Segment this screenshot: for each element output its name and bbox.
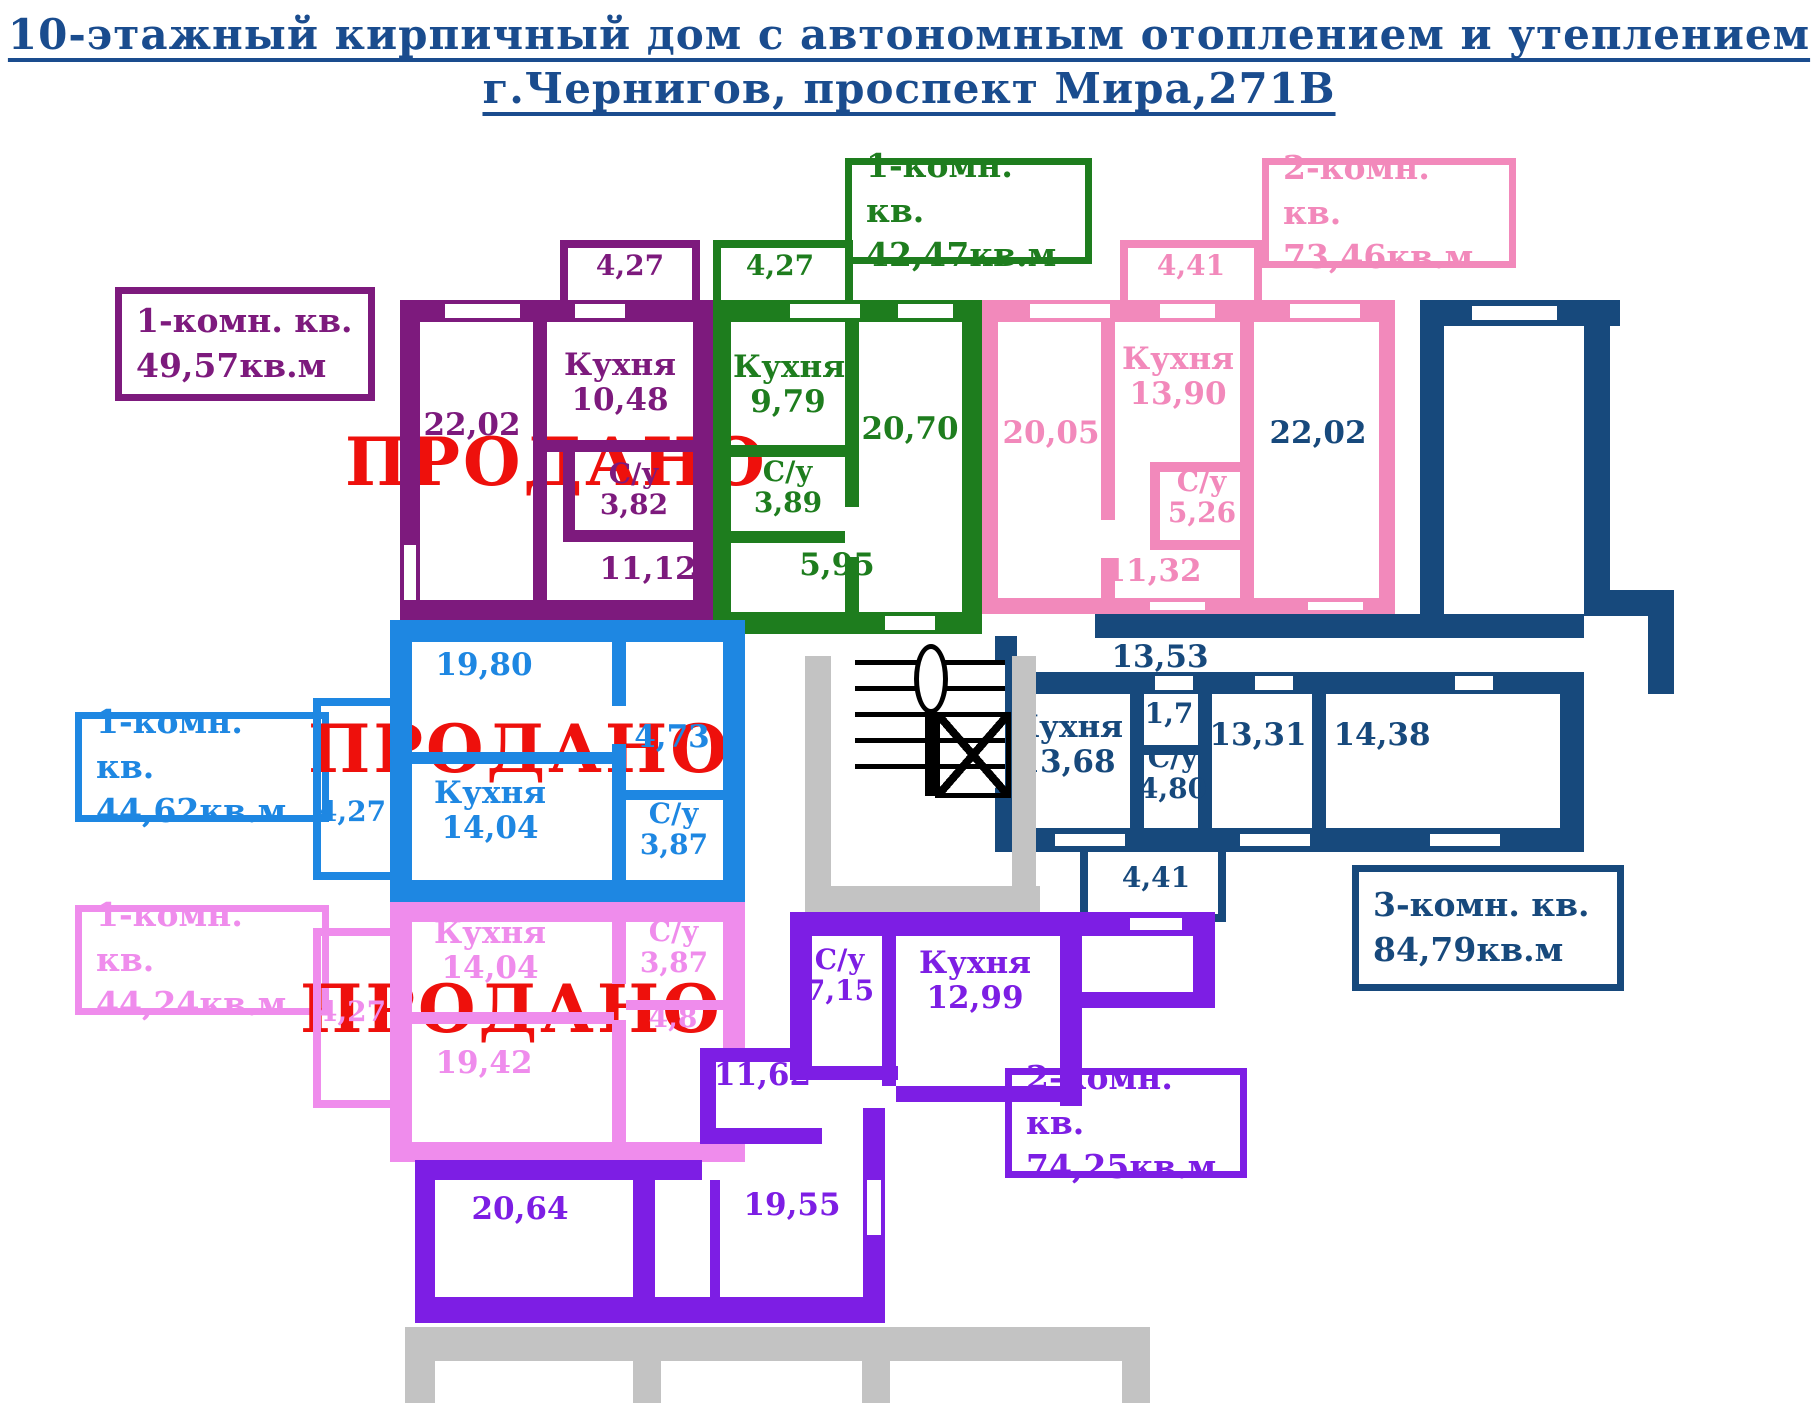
- bathroom-name: С/у: [733, 456, 843, 487]
- wall: [1312, 694, 1326, 828]
- apartment-type: 1-комн. кв.: [96, 700, 308, 789]
- window-opening: [1130, 918, 1182, 930]
- bathroom-area: 5,26: [1158, 497, 1246, 528]
- apartment-area: 84,79кв.м: [1373, 928, 1603, 973]
- balcony-wall: [1254, 240, 1262, 302]
- wall: [390, 642, 412, 882]
- balcony-wall: [313, 872, 392, 880]
- elevator-icon: [935, 712, 1011, 798]
- window-opening: [445, 304, 520, 318]
- page-title: 10-этажный кирпичный дом с автономным от…: [0, 10, 1818, 59]
- bathroom-label: С/у 3,87: [628, 798, 720, 861]
- wall: [390, 620, 745, 642]
- apartment-label-pink: 2-комн. кв. 73,46кв.м: [1262, 158, 1516, 268]
- bathroom-area: 7,15: [798, 975, 882, 1006]
- bathroom-label: С/у 3,82: [580, 458, 688, 521]
- hall-area-label: 4,73: [626, 720, 718, 755]
- bathroom-label: С/у 5,26: [1158, 466, 1246, 529]
- room-area-label: 22,02: [1258, 416, 1378, 451]
- apartment-type: 1-комн. кв.: [136, 299, 354, 344]
- wall: [882, 936, 896, 1086]
- wall: [563, 530, 693, 542]
- apartment-label-light-pink: 1-комн. кв. 44,24кв.м: [75, 905, 329, 1015]
- wall: [1584, 590, 1674, 616]
- balcony-wall: [313, 928, 392, 936]
- kitchen-name: Кухня: [733, 350, 843, 385]
- wall: [1584, 326, 1610, 590]
- kitchen-name: Кухня: [1118, 342, 1238, 377]
- wall: [713, 612, 982, 634]
- kitchen-name: Кухня: [424, 916, 556, 951]
- balcony-wall: [1218, 852, 1226, 922]
- hall-area-label: 11,12: [585, 552, 711, 587]
- wall: [1379, 322, 1395, 598]
- wall: [1082, 992, 1215, 1008]
- balcony-wall: [1120, 240, 1262, 248]
- wall: [412, 1012, 614, 1024]
- bathroom-name: С/у: [580, 458, 688, 489]
- wall: [723, 922, 745, 1048]
- room-area-label: 19,55: [736, 1188, 848, 1223]
- balcony-wall: [313, 1100, 392, 1108]
- wall: [633, 1180, 655, 1300]
- apartment-label-navy: 3-комн. кв. 84,79кв.м: [1352, 865, 1624, 991]
- bathroom-name: С/у: [1134, 742, 1212, 773]
- wall: [896, 1086, 1082, 1102]
- hall-area-label: 11,62: [714, 1058, 810, 1093]
- kitchen-label: Кухня 14,04: [424, 916, 556, 985]
- apartment-label-purple: 1-комн. кв. 49,57кв.м: [115, 287, 375, 401]
- balcony-area-label: 4,27: [722, 250, 838, 281]
- door-opening: [575, 304, 625, 318]
- wall: [1560, 694, 1584, 828]
- bathroom-label: С/у 3,87: [628, 916, 720, 979]
- foundation-pillar: [1122, 1361, 1150, 1403]
- page-subtitle: г.Чернигов, проспект Мира,271В: [0, 64, 1818, 113]
- room-area-label: 20,64: [462, 1192, 578, 1227]
- window-opening: [1472, 306, 1557, 320]
- room-area-label: 22,02: [408, 408, 536, 443]
- bathroom-label: С/у 4,80: [1134, 742, 1212, 805]
- wall: [700, 1128, 822, 1144]
- wall: [547, 440, 693, 452]
- wall: [415, 1160, 702, 1180]
- window-opening: [790, 304, 860, 318]
- apartment-area: 44,62кв.м: [96, 789, 308, 834]
- window-opening: [1430, 834, 1500, 846]
- balcony-wall: [560, 240, 700, 248]
- wall: [982, 322, 998, 598]
- wall: [1060, 936, 1082, 1106]
- wall: [1420, 326, 1444, 620]
- wall: [805, 886, 1040, 912]
- wall: [1095, 614, 1584, 638]
- wall: [412, 752, 614, 764]
- door-opening: [1155, 676, 1193, 690]
- wall: [563, 452, 575, 540]
- balcony-area-label: 4,27: [572, 250, 688, 281]
- door-opening: [1255, 676, 1293, 690]
- kitchen-name: Кухня: [545, 348, 695, 383]
- stair-rail-turn: [914, 644, 948, 714]
- bathroom-area: 3,87: [628, 947, 720, 978]
- bathroom-area: 3,89: [733, 487, 843, 518]
- closet-area-label: 1,7: [1142, 698, 1196, 729]
- wall: [1150, 540, 1254, 550]
- kitchen-label: Кухня 12,99: [900, 946, 1050, 1015]
- balcony-wall: [1120, 240, 1128, 302]
- wall: [713, 322, 731, 612]
- hall-area-label: 4,8: [636, 1002, 710, 1033]
- floor-plan: 10-этажный кирпичный дом с автономным от…: [0, 0, 1818, 1403]
- window-opening: [867, 1180, 881, 1235]
- room-area-label: 20,70: [857, 412, 963, 447]
- balcony-area-label: 4,27: [316, 996, 388, 1027]
- bathroom-area: 3,82: [580, 489, 688, 520]
- room-area-label: 19,42: [428, 1046, 540, 1081]
- kitchen-name: Кухня: [424, 776, 556, 811]
- apartment-area: 42,47кв.м: [866, 233, 1071, 278]
- wall: [415, 1297, 885, 1323]
- apartment-area: 74,25кв.м: [1026, 1145, 1226, 1190]
- balcony-wall: [313, 698, 321, 880]
- apartment-label-blue: 1-комн. кв. 44,62кв.м: [75, 712, 329, 822]
- door-opening: [1308, 602, 1363, 610]
- wall: [723, 642, 745, 880]
- door-opening: [1160, 304, 1215, 318]
- wall: [400, 600, 713, 620]
- hall-area-label: 5,95: [785, 548, 889, 583]
- balcony-area-label: 4,41: [1108, 862, 1204, 893]
- balcony-area-label: 4,41: [1128, 250, 1254, 281]
- wall: [612, 744, 626, 880]
- door-opening: [885, 616, 935, 630]
- balcony-wall: [560, 240, 568, 302]
- hall-area-label: 13,53: [1105, 640, 1215, 675]
- apartment-area: 44,24кв.м: [96, 982, 308, 1027]
- foundation-band: [405, 1327, 1150, 1361]
- balcony-wall: [845, 240, 853, 302]
- room-area-label: 13,31: [1208, 718, 1308, 753]
- wall: [612, 642, 626, 706]
- balcony-wall: [692, 240, 700, 302]
- kitchen-label: Кухня 10,48: [545, 348, 695, 417]
- foundation-pillar: [405, 1361, 435, 1403]
- window-opening: [1240, 834, 1310, 846]
- balcony-wall: [313, 698, 392, 706]
- foundation-pillar: [862, 1361, 890, 1403]
- apartment-type: 3-комн. кв.: [1373, 883, 1603, 928]
- wall: [962, 322, 982, 634]
- hall-area-label: 11,32: [1098, 554, 1208, 589]
- wall: [731, 531, 845, 543]
- apartment-label-green: 1-комн. кв. 42,47кв.м: [845, 158, 1092, 264]
- kitchen-area: 14,04: [424, 811, 556, 846]
- window-opening: [404, 545, 416, 600]
- wall: [710, 1180, 720, 1297]
- wall: [390, 1142, 745, 1162]
- bathroom-name: С/у: [1158, 466, 1246, 497]
- wall: [612, 1020, 626, 1142]
- door-opening: [1150, 602, 1205, 610]
- apartment-type: 2-комн. кв.: [1283, 146, 1495, 235]
- room-area-label: 14,38: [1330, 718, 1434, 753]
- kitchen-area: 12,99: [900, 981, 1050, 1016]
- kitchen-area: 9,79: [733, 385, 843, 420]
- apartment-type: 1-комн. кв.: [866, 144, 1071, 233]
- apartment-type: 1-комн. кв.: [96, 893, 308, 982]
- bathroom-area: 4,80: [1134, 773, 1212, 804]
- wall: [390, 922, 412, 1148]
- apartment-area: 73,46кв.м: [1283, 235, 1495, 280]
- bathroom-name: С/у: [628, 916, 720, 947]
- kitchen-area: 10,48: [545, 383, 695, 418]
- kitchen-name: Кухня: [900, 946, 1050, 981]
- door-opening: [1455, 676, 1493, 690]
- apartment-label-violet: 2-комн. кв. 74,25кв.м: [1005, 1068, 1247, 1178]
- wall: [1648, 616, 1674, 694]
- kitchen-area: 13,90: [1118, 377, 1238, 412]
- kitchen-label: Кухня 13,90: [1118, 342, 1238, 411]
- apartment-area: 49,57кв.м: [136, 344, 354, 389]
- balcony-wall: [713, 240, 853, 248]
- kitchen-label: Кухня 14,04: [424, 776, 556, 845]
- window-opening: [1290, 304, 1360, 318]
- bathroom-name: С/у: [798, 944, 882, 975]
- window-opening: [898, 304, 953, 318]
- wall: [1240, 322, 1254, 598]
- room-area-label: 19,80: [428, 648, 540, 683]
- wall: [390, 880, 745, 902]
- window-opening: [1055, 834, 1125, 846]
- kitchen-area: 14,04: [424, 951, 556, 986]
- bathroom-name: С/у: [628, 798, 720, 829]
- room-area-label: 20,05: [998, 416, 1104, 451]
- bathroom-area: 3,87: [628, 829, 720, 860]
- balcony-wall: [713, 240, 721, 302]
- foundation-pillar: [633, 1361, 661, 1403]
- wall: [612, 922, 626, 984]
- bathroom-label: С/у 3,89: [733, 456, 843, 519]
- kitchen-label: Кухня 9,79: [733, 350, 843, 419]
- wall: [805, 656, 831, 912]
- balcony-area-label: 4,27: [316, 796, 388, 827]
- wall: [1012, 656, 1036, 888]
- bathroom-label: С/у 7,15: [798, 944, 882, 1007]
- window-opening: [1030, 304, 1110, 318]
